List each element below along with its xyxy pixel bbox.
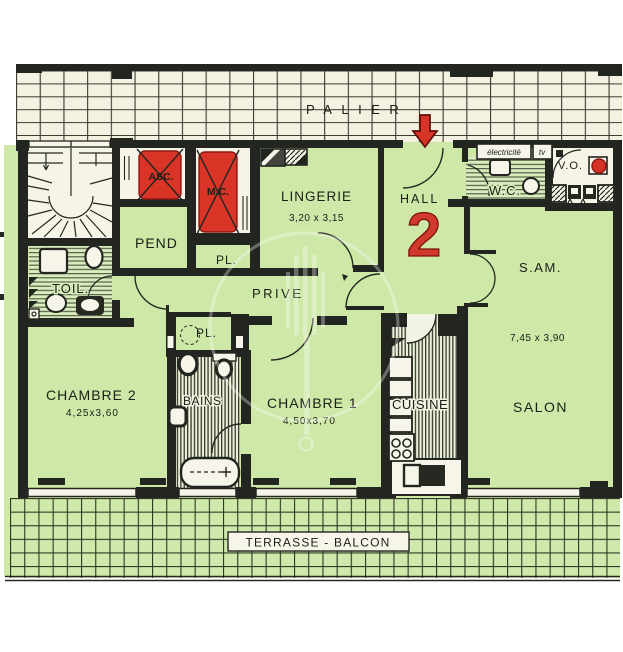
svg-text:S.AM.: S.AM. <box>519 260 562 275</box>
svg-text:électricité: électricité <box>487 148 521 157</box>
svg-text:LINGERIE: LINGERIE <box>281 189 352 204</box>
svg-text:M.C.: M.C. <box>207 186 229 198</box>
svg-text:7,45 x 3,90: 7,45 x 3,90 <box>510 333 565 344</box>
svg-text:2: 2 <box>407 201 441 270</box>
svg-text:V.O.: V.O. <box>558 160 583 172</box>
svg-text:W.C.: W.C. <box>489 183 521 198</box>
svg-text:ASC.: ASC. <box>148 171 173 183</box>
svg-text:CUISINE: CUISINE <box>392 397 448 412</box>
svg-text:BAINS: BAINS <box>183 394 222 408</box>
svg-text:3,20 x 3,15: 3,20 x 3,15 <box>289 213 344 224</box>
svg-text:CHAMBRE 2: CHAMBRE 2 <box>46 387 137 403</box>
svg-text:SALON: SALON <box>513 399 568 415</box>
svg-text:CHAMBRE 1: CHAMBRE 1 <box>267 395 358 411</box>
svg-text:PEND: PEND <box>135 235 178 251</box>
svg-text:TERRASSE - BALCON: TERRASSE - BALCON <box>245 536 390 550</box>
svg-text:tv: tv <box>539 148 546 157</box>
svg-text:TOIL.: TOIL. <box>52 281 89 296</box>
svg-text:4,25x3,60: 4,25x3,60 <box>66 408 119 419</box>
svg-text:PALIER: PALIER <box>306 102 408 117</box>
svg-text:PL.: PL. <box>196 326 217 340</box>
